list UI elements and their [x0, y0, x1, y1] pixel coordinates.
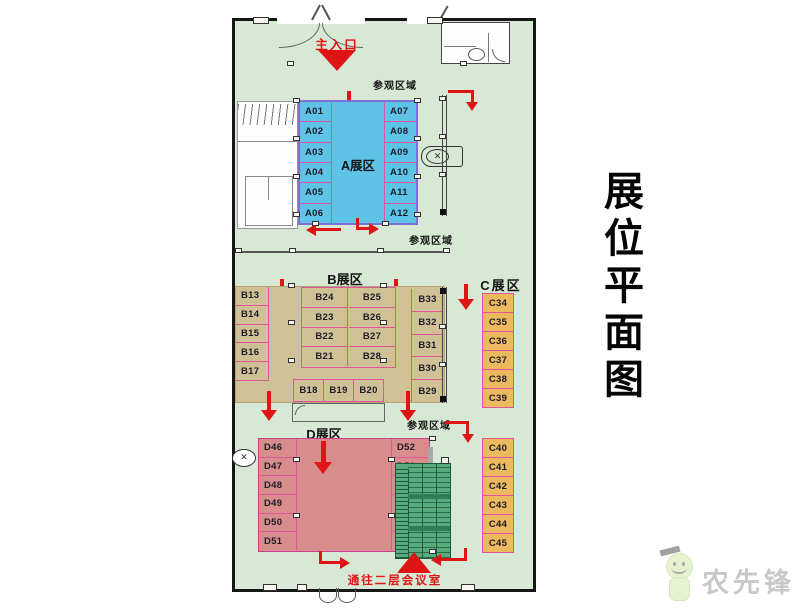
booth-label: A01: [300, 106, 323, 117]
entrance-arrow-triangle: [318, 50, 356, 71]
zone-b-bottom-booths: B18B19B20: [293, 379, 384, 402]
booth-D50: D50: [259, 514, 296, 533]
column-marker: [388, 513, 395, 518]
booth-B13: B13: [236, 287, 268, 306]
booth-B16: B16: [236, 343, 268, 362]
corner-arrow-head: [340, 557, 350, 569]
arrow-down: [406, 391, 410, 411]
arrow-down-head: [314, 462, 332, 474]
booth-label: C41: [489, 462, 507, 473]
booth-label: A08: [385, 126, 408, 137]
booth-C40: C40: [483, 439, 513, 458]
column-marker: [429, 549, 436, 554]
column-marker: [288, 358, 295, 363]
zone-a: A01A02A03A04A05A06 A07A08A09A10A11A12 A展…: [298, 100, 418, 225]
booth-A01: A01: [300, 102, 331, 122]
booth-label: C34: [489, 298, 507, 309]
escalator: [395, 463, 451, 559]
arrow-down-head: [458, 299, 474, 310]
booth-B18: B18: [294, 380, 324, 401]
booth-label: B29: [418, 386, 436, 397]
vestibule-door-arc: [295, 405, 305, 415]
column-marker: [460, 61, 467, 66]
arrow-down: [267, 391, 271, 411]
booth-label: C43: [489, 500, 507, 511]
corner-arrow-head: [462, 434, 474, 443]
restroom-door-arc: [492, 49, 505, 62]
column-marker: [293, 212, 300, 217]
bottom-door-arc: [319, 588, 337, 603]
booth-label: C37: [489, 355, 507, 366]
booth-label: A11: [385, 187, 408, 198]
visit-area-label-lower: 参观区域: [401, 417, 457, 432]
booth-label: C45: [489, 538, 507, 549]
corner-arrow-head: [369, 223, 379, 235]
window-tab: [461, 584, 475, 591]
booth-C34: C34: [483, 294, 513, 313]
escalator-landing: [408, 494, 450, 499]
booth-D47: D47: [259, 458, 296, 477]
zone-a-label: A展区: [330, 155, 386, 174]
booth-B30: B30: [412, 357, 443, 380]
booth-label: A06: [300, 208, 323, 219]
escalator-rail: [436, 464, 437, 558]
window-tab: [253, 17, 269, 24]
booth-C35: C35: [483, 313, 513, 332]
booth-label: C42: [489, 481, 507, 492]
window-tab: [263, 584, 277, 591]
booth-A08: A08: [385, 122, 416, 142]
booth-B22: B22: [302, 328, 347, 348]
zone-b-right-booths: B33B32B31B30B29: [411, 289, 443, 402]
booth-label: A03: [300, 147, 323, 158]
column-marker: [293, 457, 300, 462]
booth-B28: B28: [349, 347, 395, 366]
booth-D49: D49: [259, 495, 296, 514]
corner-arrow-head: [466, 102, 478, 111]
booth-B24: B24: [302, 288, 347, 308]
zone-b-center-right-booths: B25B26B27B28: [349, 288, 395, 366]
revolving-door: ✕: [232, 449, 256, 467]
booth-C45: C45: [483, 534, 513, 552]
column-marker: [293, 174, 300, 179]
mascot-smile-icon: [671, 562, 687, 574]
column-marker: [439, 324, 446, 329]
booth-label: D48: [259, 480, 282, 491]
booth-label: B25: [363, 292, 381, 303]
booth-A04: A04: [300, 163, 331, 183]
hall-divider-line: [237, 251, 449, 253]
escalator-entry-triangle: [397, 552, 431, 573]
booth-A11: A11: [385, 183, 416, 203]
booth-C43: C43: [483, 496, 513, 515]
column-marker: [414, 136, 421, 141]
room-line: [268, 176, 269, 200]
column-marker: [388, 457, 395, 462]
booth-B20: B20: [354, 380, 383, 401]
booth-D52: D52: [392, 439, 429, 458]
elevator: ✕: [421, 146, 463, 167]
booth-label: B24: [315, 292, 333, 303]
column-marker: [439, 134, 446, 139]
vestibule: [292, 403, 385, 422]
mascot-body-icon: [669, 577, 690, 601]
zone-d-left-booths: D46D47D48D49D50D51: [259, 439, 297, 550]
booth-label: B30: [418, 363, 436, 374]
room-line: [444, 46, 476, 47]
booth-label: A04: [300, 167, 323, 178]
booth-label: D51: [259, 536, 282, 547]
room-line: [238, 141, 297, 142]
booth-D46: D46: [259, 439, 296, 458]
booth-A05: A05: [300, 183, 331, 203]
zone-b-center-left-booths: B24B23B22B21: [302, 288, 348, 366]
booth-label: B32: [418, 317, 436, 328]
booth-C44: C44: [483, 515, 513, 534]
booth-C39: C39: [483, 389, 513, 407]
booth-label: B31: [418, 340, 436, 351]
booth-C42: C42: [483, 477, 513, 496]
booth-label: B23: [315, 312, 333, 323]
column-marker: [380, 283, 387, 288]
booth-label: C40: [489, 443, 507, 454]
corner-arrow: [439, 558, 467, 561]
page-title: 展位平面图: [588, 170, 650, 420]
watermark-logo: 农先锋: [656, 549, 800, 611]
column-marker: [414, 174, 421, 179]
booth-label: B22: [315, 331, 333, 342]
column-marker: [443, 248, 450, 253]
column-marker: [293, 98, 300, 103]
escalator-landing: [408, 526, 450, 531]
zone-c-top-booths: C34C35C36C37C38C39: [482, 293, 514, 408]
booth-C36: C36: [483, 332, 513, 351]
booth-label: D52: [392, 442, 415, 453]
zone-b: B13B14B15B16B17 B24B23B22B21 B25B26B27B2…: [235, 286, 445, 403]
booth-B14: B14: [236, 306, 268, 325]
booth-label: C35: [489, 317, 507, 328]
escalator-steps: [408, 464, 450, 558]
column-marker: [439, 96, 446, 101]
column-marker: [414, 98, 421, 103]
booth-label: A05: [300, 187, 323, 198]
booth-B27: B27: [349, 328, 395, 348]
window-tab: [297, 584, 307, 591]
column-marker: [429, 436, 436, 441]
wall-end-marker: [440, 288, 446, 294]
booth-A10: A10: [385, 163, 416, 183]
column-marker: [235, 248, 242, 253]
booth-label: D49: [259, 498, 282, 509]
restroom: [441, 22, 510, 64]
booth-label: A12: [385, 208, 408, 219]
column-marker: [377, 248, 384, 253]
booth-A02: A02: [300, 122, 331, 142]
booth-B23: B23: [302, 308, 347, 328]
column-marker: [312, 221, 319, 226]
toilet: [468, 48, 485, 61]
booth-label: B33: [418, 294, 436, 305]
escalator-rail: [422, 464, 423, 558]
booth-C37: C37: [483, 351, 513, 370]
booth-B19: B19: [324, 380, 354, 401]
booth-label: A09: [385, 147, 408, 158]
booth-label: C36: [489, 336, 507, 347]
booth-B15: B15: [236, 325, 268, 344]
arrow-down-head: [261, 410, 277, 421]
elevator-symbol: ✕: [426, 149, 449, 164]
booth-label: D47: [259, 461, 282, 472]
column-marker: [380, 358, 387, 363]
booth-label: A07: [385, 106, 408, 117]
zone-b-right-wall: [442, 287, 447, 403]
booth-label: D46: [259, 442, 282, 453]
zone-b-left-booths: B13B14B15B16B17: [236, 287, 269, 381]
booth-D48: D48: [259, 476, 296, 495]
booth-A03: A03: [300, 143, 331, 163]
column-marker: [287, 61, 294, 66]
visit-area-label-top: 参观区域: [367, 77, 423, 92]
booth-B21: B21: [302, 347, 347, 366]
booth-label: B18: [299, 385, 317, 396]
booth-label: B20: [359, 385, 377, 396]
booth-label: A02: [300, 126, 323, 137]
column-marker: [288, 283, 295, 288]
booth-label: D50: [259, 517, 282, 528]
column-marker: [288, 320, 295, 325]
column-marker: [439, 172, 446, 177]
booth-label: B15: [236, 328, 259, 339]
booth-B29: B29: [412, 380, 443, 402]
watermark-text: 农先锋: [702, 561, 795, 600]
column-marker: [441, 457, 449, 464]
zone-b-center-block: B24B23B22B21 B25B26B27B28: [301, 287, 396, 368]
corner-arrow-head: [431, 554, 441, 566]
side-entrance-gap: [407, 17, 427, 24]
booth-B17: B17: [236, 362, 268, 380]
zone-c-label: C展区: [475, 275, 527, 294]
booth-D51: D51: [259, 532, 296, 550]
booth-label: B13: [236, 290, 259, 301]
zone-c-bottom-booths: C40C41C42C43C44C45: [482, 438, 514, 553]
column-marker: [382, 221, 389, 226]
page: { "title": { "text": "展位平面图" }, "plan": …: [0, 0, 800, 611]
room-line: [488, 33, 489, 62]
booth-label: B16: [236, 347, 259, 358]
window-tab: [427, 17, 443, 24]
booth-label: B14: [236, 309, 259, 320]
wall-end-marker: [440, 396, 446, 402]
booth-label: B27: [363, 331, 381, 342]
booth-B26: B26: [349, 308, 395, 328]
inner-room-outline: [245, 176, 293, 226]
arrow-down: [321, 441, 326, 463]
corner-arrow: [319, 561, 342, 564]
stair-room: [237, 101, 298, 229]
column-marker: [439, 362, 446, 367]
visit-area-label-mid: 参观区域: [403, 232, 459, 247]
booth-label: A10: [385, 167, 408, 178]
column-marker: [380, 320, 387, 325]
booth-B31: B31: [412, 335, 443, 358]
zone-a-left-booths: A01A02A03A04A05A06: [300, 102, 332, 223]
booth-label: B28: [363, 351, 381, 362]
booth-C41: C41: [483, 458, 513, 477]
booth-label: B19: [329, 385, 347, 396]
column-marker: [289, 248, 296, 253]
booth-A09: A09: [385, 143, 416, 163]
arrow-left: [315, 228, 341, 231]
booth-label: B26: [363, 312, 381, 323]
booth-C38: C38: [483, 370, 513, 389]
bottom-door-arc: [338, 588, 356, 603]
booth-A07: A07: [385, 102, 416, 122]
zone-a-right-booths: A07A08A09A10A11A12: [384, 102, 416, 223]
booth-label: B21: [315, 351, 333, 362]
booth-B25: B25: [349, 288, 395, 308]
floor-plan: 主入口 参观区域 A01A02A03A04A05A06 A07A08A09A10…: [232, 18, 536, 592]
booth-label: C44: [489, 519, 507, 530]
stair-hatch: [238, 104, 297, 125]
corner-arrow: [466, 421, 469, 435]
booth-B33: B33: [412, 289, 443, 312]
arrow-down: [464, 284, 468, 300]
booth-label: C39: [489, 393, 507, 404]
wall-end-marker: [440, 209, 446, 215]
booth-label: B17: [236, 366, 259, 377]
booth-A12: A12: [385, 204, 416, 223]
column-marker: [293, 136, 300, 141]
column-marker: [293, 513, 300, 518]
column-marker: [414, 212, 421, 217]
booth-label: C38: [489, 374, 507, 385]
